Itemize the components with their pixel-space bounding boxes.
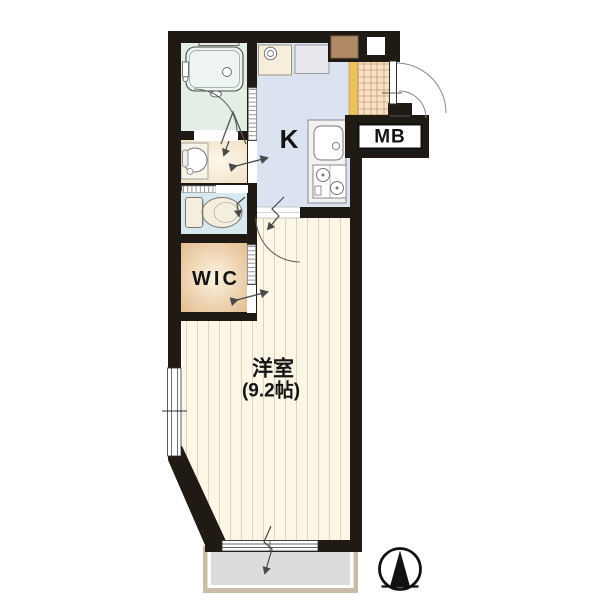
floor-plan-drawing — [0, 0, 600, 600]
toilet-sliding-door — [182, 186, 216, 193]
main-room-size-label: (9.2帖) — [242, 382, 300, 401]
washing-machine-pan — [259, 45, 292, 75]
balcony-window — [222, 541, 318, 552]
kitchen-label: K — [280, 126, 299, 152]
floor-plan: K MB WIC 洋室 (9.2帖) — [0, 0, 600, 600]
wic-label: WIC — [192, 269, 240, 289]
bathtub — [183, 41, 244, 97]
balcony — [203, 546, 358, 593]
washbasin — [181, 143, 208, 179]
refrigerator-space — [295, 45, 329, 74]
entrance-genkan — [349, 58, 390, 115]
pillar-marker — [367, 37, 385, 55]
entry-door-leaf — [390, 61, 397, 104]
stove — [313, 165, 346, 198]
toilet — [186, 198, 243, 228]
main-room-label: 洋室 — [252, 359, 294, 380]
washroom-sliding-door — [249, 88, 257, 140]
north-compass-icon — [380, 549, 421, 590]
meter-box-label: MB — [374, 128, 406, 147]
